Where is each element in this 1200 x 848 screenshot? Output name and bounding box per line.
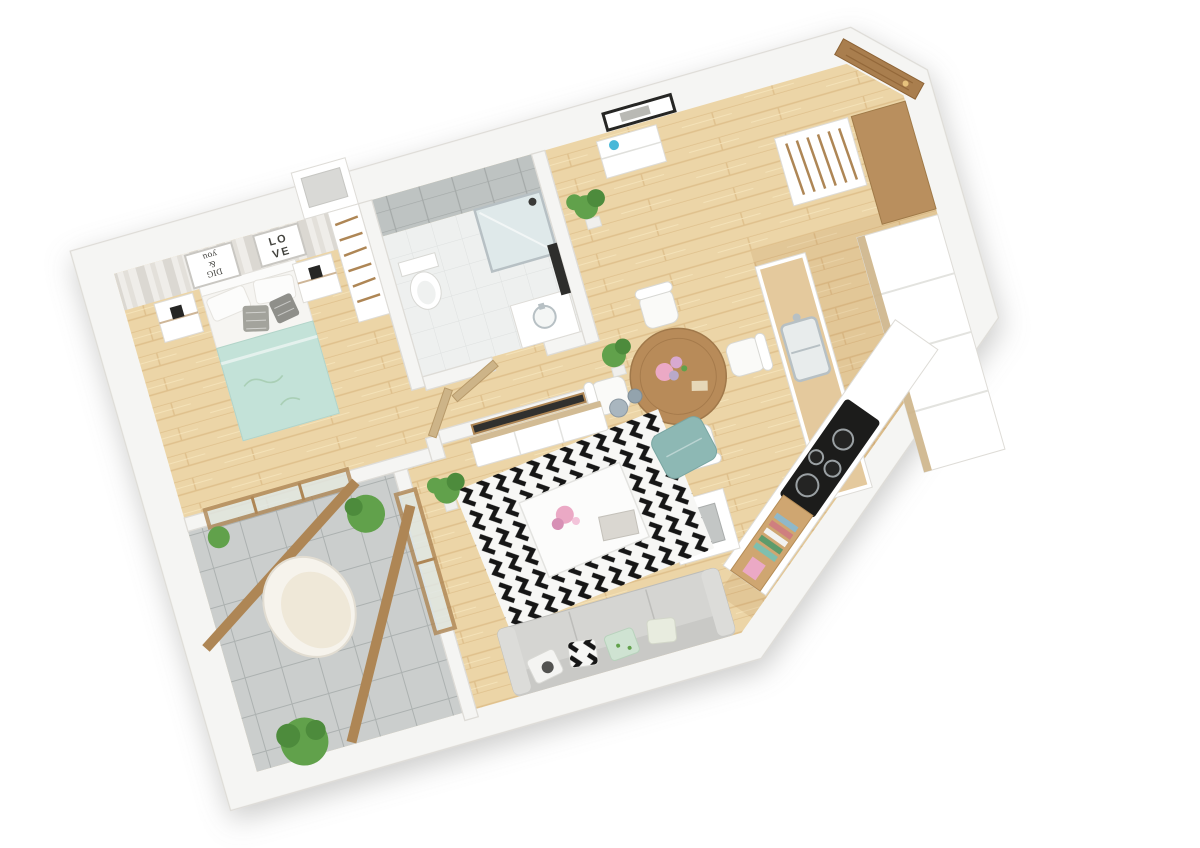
patterned-cushion (242, 305, 269, 332)
floor-plan-canvas: DIG & you LO VE (0, 0, 1200, 848)
rotated-plan: DIG & you LO VE (66, 0, 1070, 811)
sofa-pillow (647, 617, 677, 644)
table-mat (692, 381, 708, 391)
sofa-pillow (567, 639, 598, 669)
apartment-3d-floor-plan: DIG & you LO VE (0, 0, 1200, 848)
